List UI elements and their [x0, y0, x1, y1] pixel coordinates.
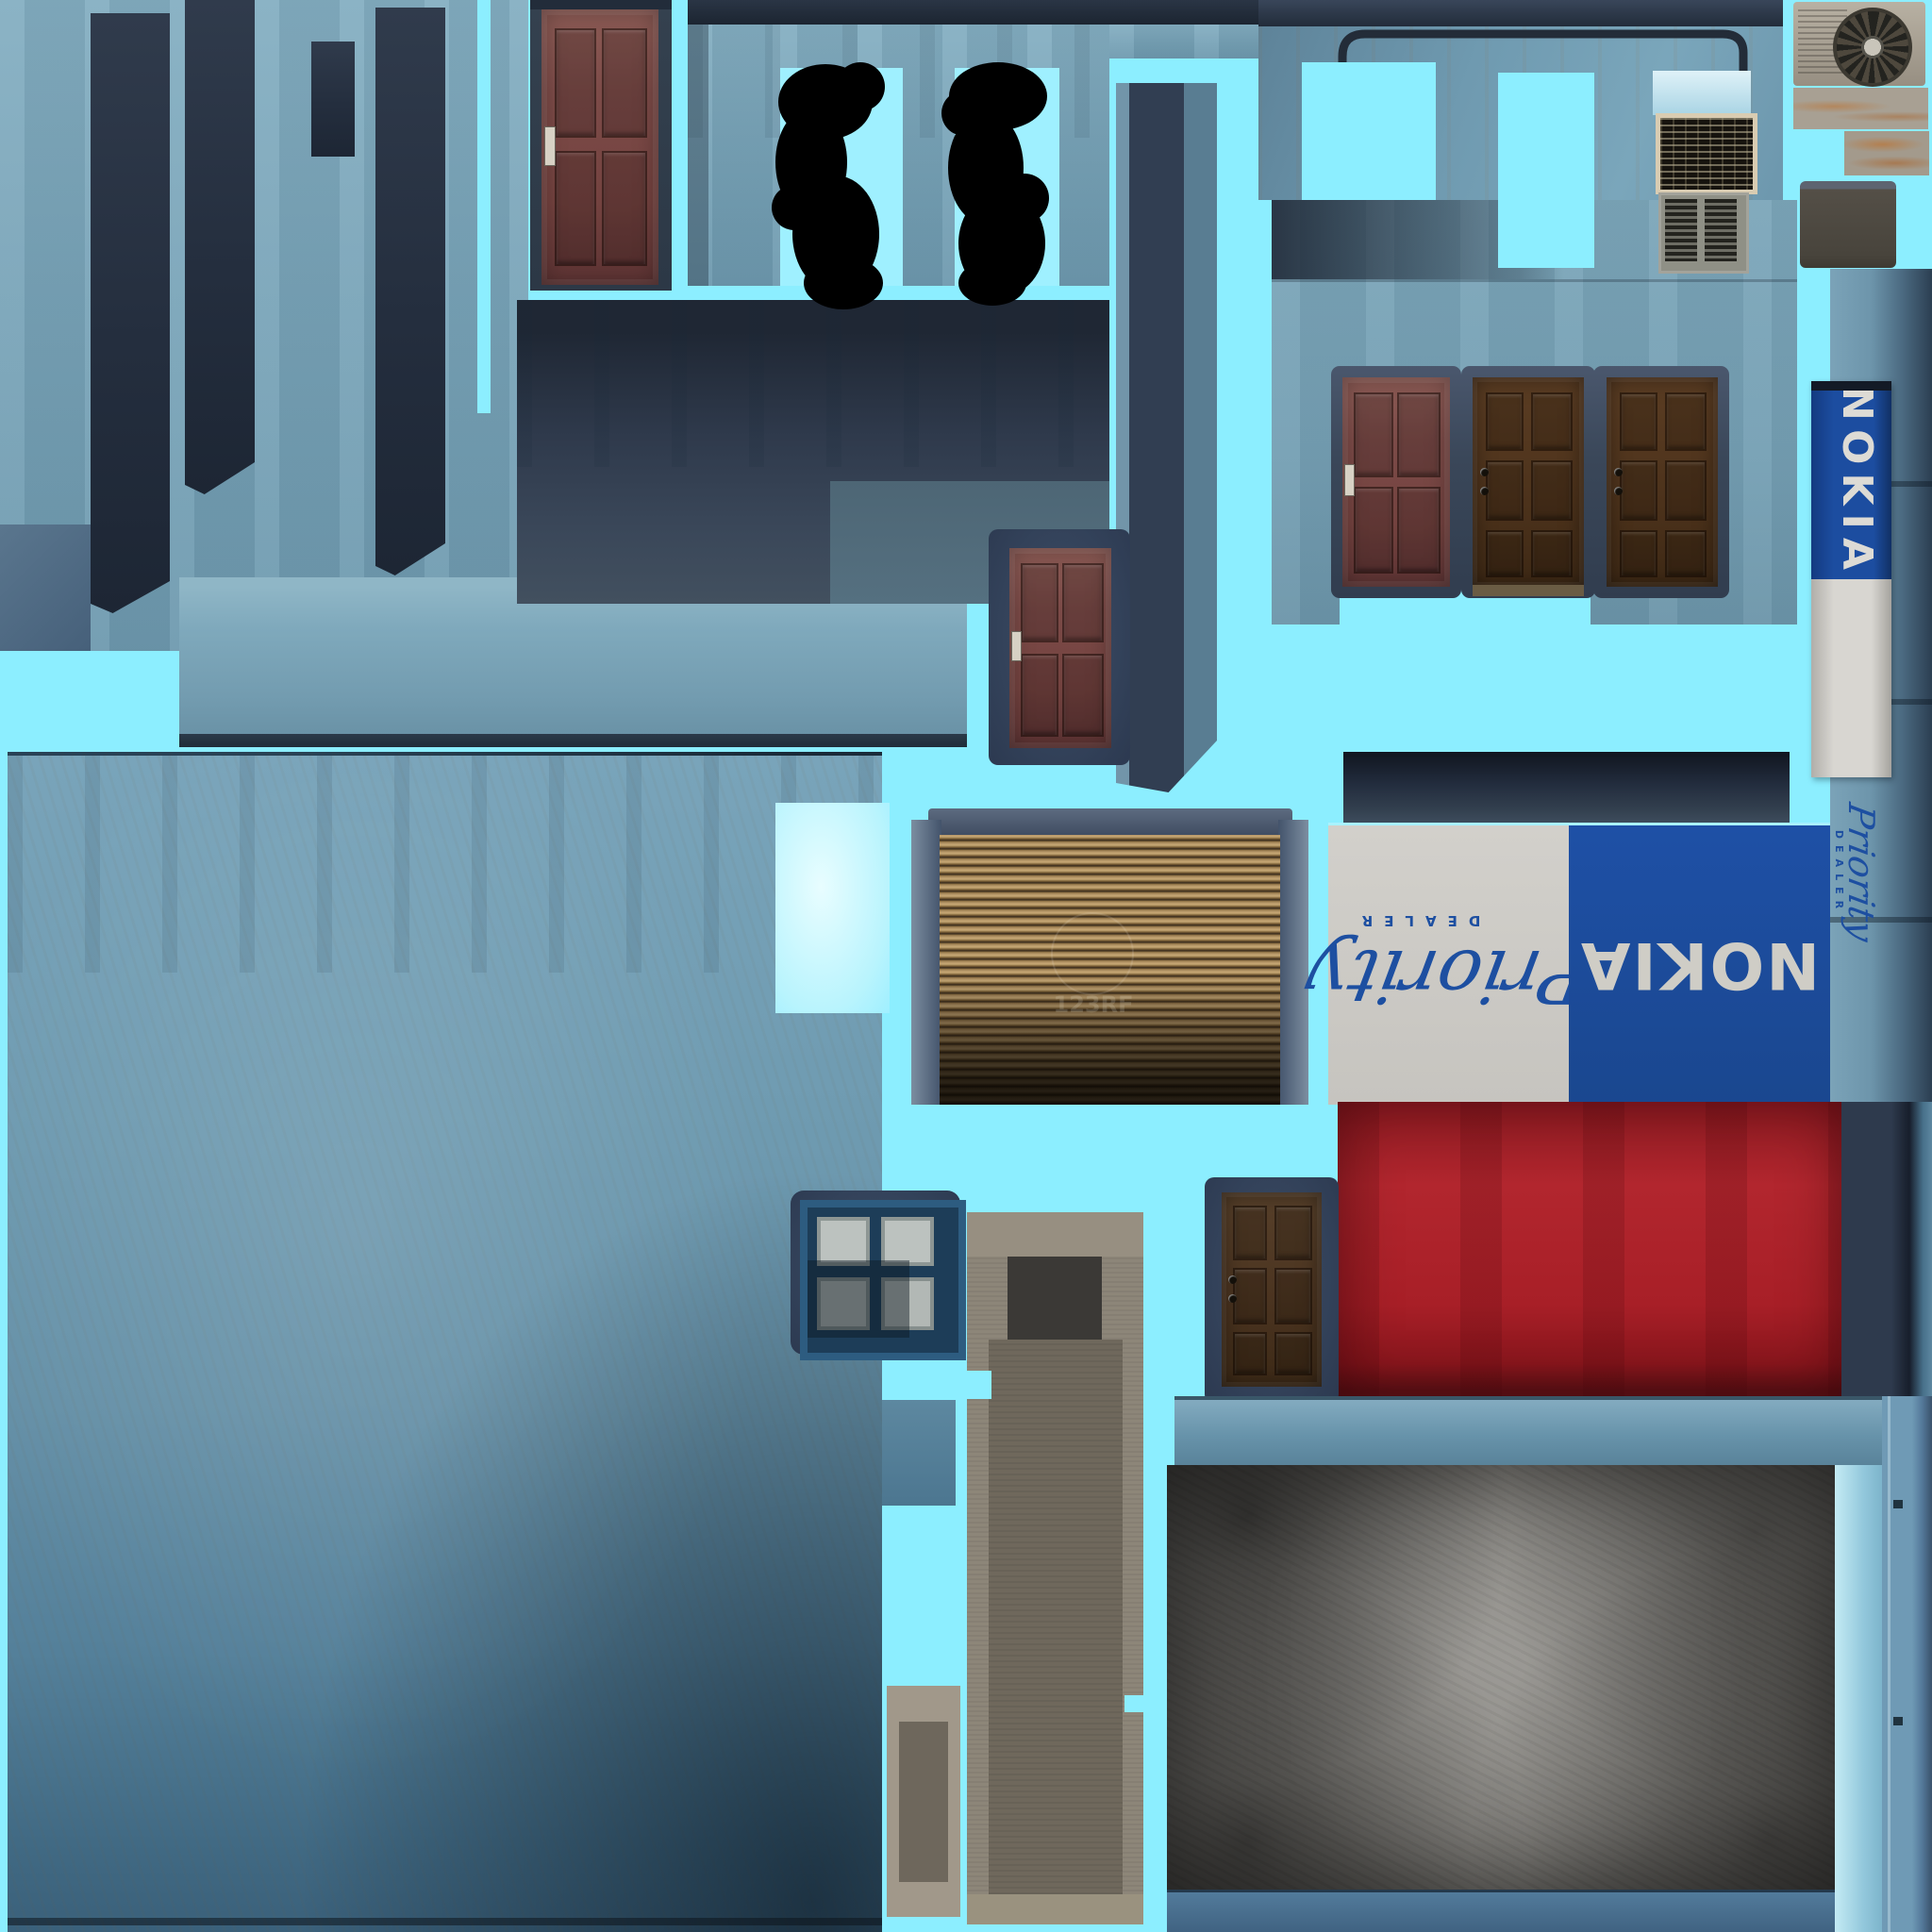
dark-gray-box	[1800, 181, 1896, 268]
door-brown-2	[1607, 377, 1718, 587]
door-panel	[1233, 1332, 1267, 1375]
nokia-horizontal-sign: Priority DEALER NOKIA	[1328, 823, 1830, 1105]
door-threshold	[1473, 585, 1584, 596]
tan-strip-inset	[899, 1722, 948, 1882]
nokia-vertical-sign: NOKIA Priority DEALER	[1811, 381, 1891, 777]
shutter-jamb	[1278, 820, 1308, 1105]
door-deadbolt	[1228, 1294, 1237, 1303]
metal-edge-strip	[688, 0, 1258, 25]
dealer-label: DEALER	[1351, 912, 1481, 929]
sign-blue-half: NOKIA	[1569, 825, 1830, 1105]
door-panel	[1062, 654, 1104, 737]
door-panel	[1397, 392, 1441, 477]
corner-block-dark	[0, 525, 91, 651]
louver-slats	[1705, 199, 1737, 261]
sign-white-half: Priority DEALER	[1811, 579, 1891, 777]
wall-step-extension	[882, 1400, 956, 1506]
wall-band	[1109, 25, 1258, 58]
nokia-label: NOKIA	[1579, 928, 1820, 1003]
door-handle	[544, 126, 556, 166]
pilaster-dark	[375, 8, 445, 575]
blacked-out-blobs	[745, 47, 1085, 311]
window-grille-ac	[1656, 113, 1757, 194]
door-panel	[1397, 487, 1441, 574]
door-panel	[1665, 460, 1707, 521]
dark-beam	[1343, 752, 1790, 823]
uv-notch	[967, 1371, 991, 1399]
priority-label: Priority	[1300, 933, 1597, 1018]
ledge-band-bottom	[1167, 1890, 1835, 1932]
door-panel	[1274, 1268, 1312, 1324]
door-brown-1	[1473, 377, 1584, 587]
door-panel	[602, 28, 647, 138]
rivets	[1893, 1396, 1903, 1932]
window-sill-haze	[1653, 71, 1751, 115]
inner-dark-panel	[989, 1340, 1123, 1894]
door-panel	[1021, 654, 1058, 737]
door-maroon-top	[541, 9, 658, 285]
strip-footer	[967, 1894, 1143, 1924]
sign-gray-half: Priority DEALER	[1328, 825, 1569, 1105]
watermark-text: 123RF	[1051, 991, 1136, 1018]
door-panel	[1274, 1332, 1312, 1375]
door-panel	[1354, 487, 1393, 574]
grunge-plaster-square	[1167, 1465, 1835, 1891]
priority-label: Priority	[1846, 801, 1878, 944]
pilaster-dark	[91, 13, 170, 613]
door-panel	[1665, 530, 1707, 577]
wall-base-seam	[8, 1918, 882, 1925]
rusty-panel	[1844, 131, 1929, 175]
tan-strip	[887, 1686, 960, 1917]
navy-strip	[1841, 1102, 1932, 1399]
door-knob	[1480, 468, 1489, 476]
ac-fan	[1833, 8, 1912, 87]
grime-streaks	[8, 756, 882, 973]
texture-atlas-sheet: NOKIA Priority DEALER 123RF	[0, 0, 1932, 1932]
large-plaster-wall	[8, 752, 882, 1932]
wall-strips-block	[0, 0, 528, 651]
sign-blue-half: NOKIA	[1811, 381, 1891, 579]
nokia-label: NOKIA	[1834, 386, 1882, 578]
rusty-panel	[1793, 88, 1928, 129]
door-panel	[1233, 1206, 1267, 1260]
pilaster-dark-small	[311, 42, 355, 157]
door-handle	[1011, 631, 1022, 661]
door-panel	[1620, 460, 1657, 521]
grime-streaks	[517, 300, 1109, 467]
door-brown-small	[1222, 1192, 1322, 1387]
door-panel	[555, 151, 596, 266]
window-cutout-extension	[1498, 200, 1594, 268]
ac-condenser-unit	[1793, 2, 1925, 86]
door-maroon-right	[1342, 377, 1450, 587]
door-panel	[1620, 530, 1657, 577]
sign-brand-content: NOKIA	[1569, 825, 1830, 1105]
door-deadbolt	[1480, 487, 1489, 495]
door-panel	[1021, 563, 1058, 642]
sign-cap	[1811, 381, 1891, 391]
watermark-circle	[1051, 912, 1134, 995]
window-cutout	[1302, 62, 1436, 200]
riveted-metal-strip	[1882, 1396, 1932, 1932]
window-blue	[800, 1200, 966, 1360]
red-wall-block	[1338, 1102, 1841, 1399]
strip-header	[967, 1212, 1143, 1257]
concrete-ledge-band	[1174, 1396, 1932, 1472]
door-panel	[1274, 1206, 1312, 1260]
concrete-column	[1116, 83, 1217, 792]
door-handle	[1344, 464, 1355, 496]
gray-plaster-strip	[967, 1212, 1143, 1924]
door-panel	[1486, 392, 1524, 451]
door-panel	[1531, 460, 1573, 521]
door-panel	[1531, 392, 1573, 451]
sign-dealer-text: Priority DEALER	[1826, 785, 1885, 960]
door-deadbolt	[1614, 487, 1623, 495]
pilaster-dark	[185, 0, 255, 494]
sign-brand-text: NOKIA	[1828, 392, 1887, 572]
door-panel	[555, 28, 596, 138]
door-panel	[602, 151, 647, 266]
uv-notch	[1124, 1695, 1143, 1712]
window-shadow-overlay	[808, 1260, 909, 1338]
uv-gap	[477, 0, 491, 413]
shutter-jamb	[911, 820, 941, 1105]
dark-inset-square	[1008, 1257, 1102, 1343]
door-panel	[1354, 392, 1393, 477]
louver-vent	[1658, 192, 1749, 274]
door-panel	[1233, 1268, 1267, 1324]
light-column	[1835, 1465, 1882, 1932]
sign-dealer-content: Priority DEALER	[1328, 825, 1569, 1105]
window-pane	[817, 1217, 870, 1266]
uv-notch-cutout	[775, 803, 890, 1013]
louver-slats	[1665, 199, 1697, 261]
seam-line	[1272, 279, 1797, 282]
door-panel	[1620, 392, 1657, 451]
slab-shadow-edge	[179, 734, 967, 747]
door-panel	[1665, 392, 1707, 451]
window-cutout	[1498, 73, 1594, 200]
door-panel	[1486, 460, 1524, 521]
door-panel	[1062, 563, 1104, 642]
metal-seam	[1888, 1396, 1890, 1932]
door-knob	[1614, 468, 1623, 476]
door-knob	[1228, 1275, 1237, 1284]
roller-shutter: 123RF	[911, 807, 1308, 1108]
window-pane	[881, 1217, 934, 1266]
door-panel	[1486, 530, 1524, 577]
door-maroon-middle	[1009, 548, 1111, 748]
door-panel	[1531, 530, 1573, 577]
